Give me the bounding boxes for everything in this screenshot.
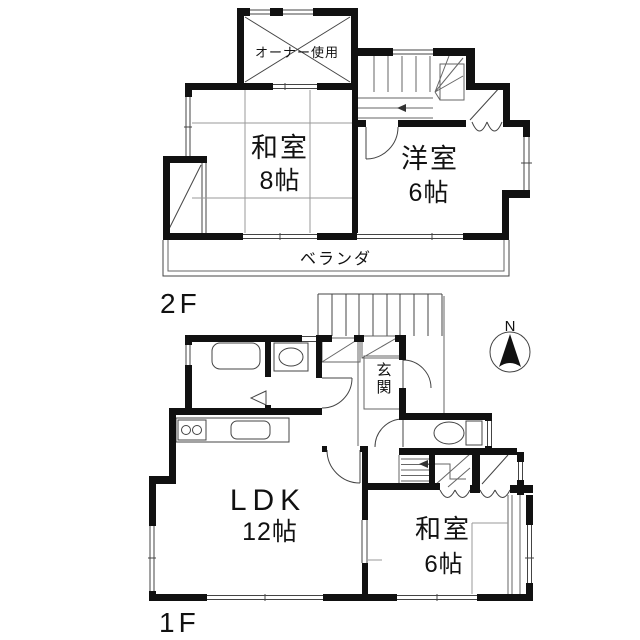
under-stair-closet-diagonal xyxy=(482,455,508,484)
sink-icon xyxy=(279,348,303,366)
youshitsu6-size: 6帖 xyxy=(409,179,450,207)
bathroom xyxy=(186,343,266,405)
staircase-1f xyxy=(399,454,510,498)
washroom xyxy=(274,337,352,409)
closet-2f-diagonal xyxy=(470,86,501,120)
staircase-2f xyxy=(358,50,464,118)
ldk-name: LDK xyxy=(230,484,306,517)
closet-2f-folding-doors xyxy=(472,122,502,131)
kitchen xyxy=(176,418,289,442)
walls-1f xyxy=(149,335,533,601)
toilet-tank xyxy=(466,421,482,445)
ldk-door-arc xyxy=(327,450,360,483)
youshitsu-door-arc xyxy=(366,127,398,159)
stair-arrow-icon xyxy=(397,104,406,112)
washitsu6-name: 和室 xyxy=(415,514,471,544)
bathroom-door-icon xyxy=(251,391,266,405)
veranda-label: ベランダ xyxy=(300,250,372,268)
floor-plan-page: オーナー使用 和室 8帖 洋室 6帖 ベランダ 2F xyxy=(0,0,640,640)
kitchen-sink-icon xyxy=(231,421,270,439)
walls-2f xyxy=(163,8,530,240)
floor-2f-label: 2F xyxy=(160,288,201,319)
washitsu6-size: 6帖 xyxy=(424,551,463,578)
compass: N xyxy=(490,318,530,372)
washitsu8-name: 和室 xyxy=(251,133,309,163)
floor-plan-drawing: オーナー使用 和室 8帖 洋室 6帖 ベランダ 2F xyxy=(0,0,640,640)
washitsu8-size: 8帖 xyxy=(260,167,301,195)
burner-icon xyxy=(193,426,202,435)
floor-1f-label: 1F xyxy=(159,607,200,638)
floor-1f: 玄関 LDK 12帖 和室 6帖 1F xyxy=(148,296,534,638)
burner-icon xyxy=(182,426,191,435)
entrance-door-arc xyxy=(403,360,431,388)
floor-2f: オーナー使用 和室 8帖 洋室 6帖 ベランダ 2F xyxy=(160,8,532,319)
winder-steps xyxy=(435,454,470,487)
bathtub-icon xyxy=(212,343,260,369)
owner-room-label: オーナー使用 xyxy=(255,45,339,60)
north-arrow-icon xyxy=(499,334,521,367)
youshitsu6-name: 洋室 xyxy=(401,144,459,174)
engawa-lines xyxy=(508,495,520,594)
stair-connector xyxy=(318,294,442,336)
genkan-label: 玄関 xyxy=(375,362,392,396)
toilet-room xyxy=(375,419,492,447)
washroom-door-arc xyxy=(322,378,352,408)
toilet-door-arc xyxy=(375,419,403,447)
ldk-washitsu-sliding-door xyxy=(362,520,367,563)
toilet-icon xyxy=(434,422,464,444)
stair-arrow-icon xyxy=(419,460,428,468)
ldk-size: 12帖 xyxy=(242,518,298,546)
